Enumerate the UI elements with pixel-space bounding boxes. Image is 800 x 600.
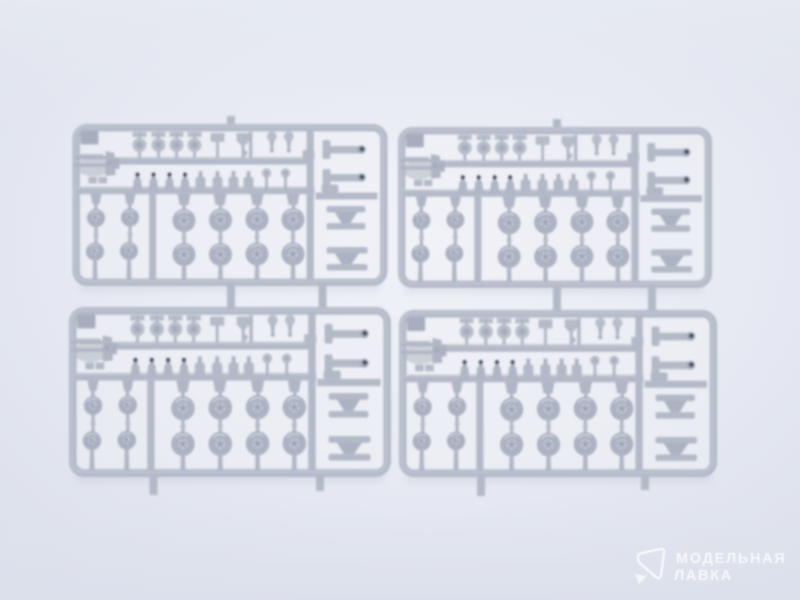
svg-text:ЛАВКА: ЛАВКА	[674, 568, 733, 584]
svg-text:МОДЕЛЬНАЯ: МОДЕЛЬНАЯ	[676, 551, 786, 567]
